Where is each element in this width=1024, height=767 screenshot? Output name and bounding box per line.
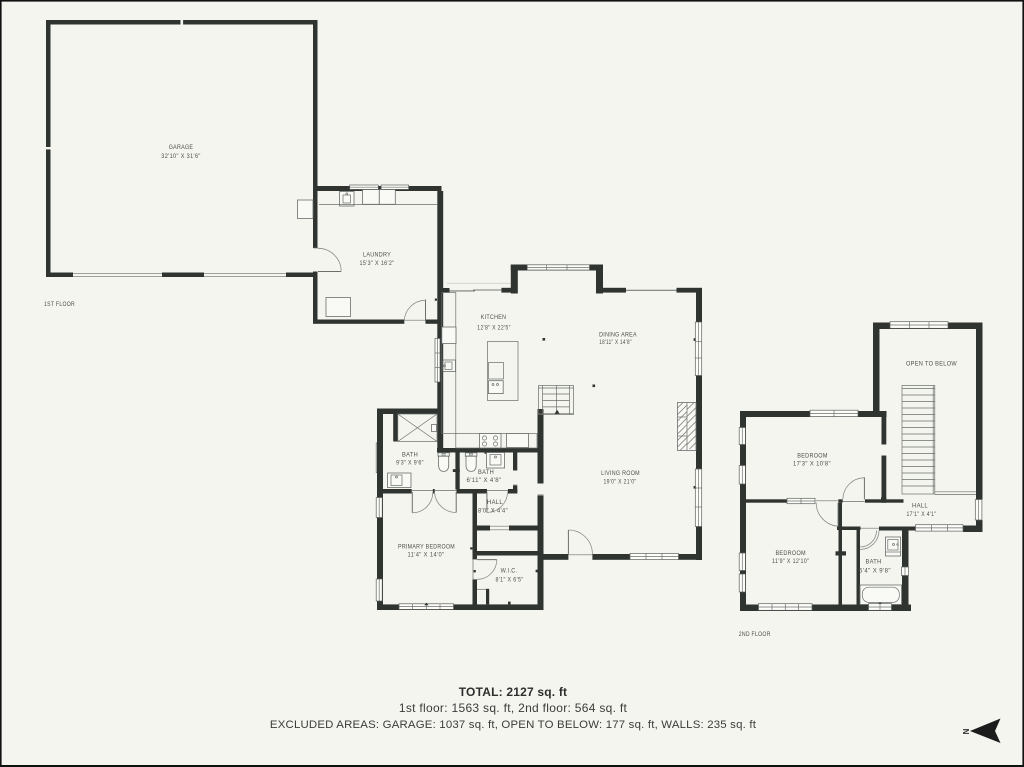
svg-text:1st floor: 1563 sq. ft, 2nd fl: 1st floor: 1563 sq. ft, 2nd floor: 564 s… — [399, 701, 628, 715]
svg-text:17'1" X 4'1": 17'1" X 4'1" — [907, 511, 937, 518]
svg-text:N: N — [961, 729, 970, 735]
svg-text:BEDROOM: BEDROOM — [775, 550, 806, 557]
svg-text:KITCHEN: KITCHEN — [481, 314, 507, 321]
svg-text:32'10" X 31'6": 32'10" X 31'6" — [161, 153, 201, 160]
svg-text:HALL: HALL — [912, 503, 928, 510]
svg-text:18'11" X 14'8": 18'11" X 14'8" — [599, 339, 632, 346]
svg-text:HALL: HALL — [487, 499, 503, 506]
svg-text:PRIMARY BEDROOM: PRIMARY BEDROOM — [398, 544, 455, 551]
svg-text:BATH: BATH — [478, 469, 494, 476]
svg-text:GARAGE: GARAGE — [169, 144, 194, 151]
svg-text:15'3" X 16'2": 15'3" X 16'2" — [360, 260, 395, 267]
svg-text:EXCLUDED AREAS: GARAGE: 1037 s: EXCLUDED AREAS: GARAGE: 1037 sq. ft, OPE… — [270, 719, 757, 731]
svg-text:LAUNDRY: LAUNDRY — [363, 252, 391, 259]
svg-text:OPEN TO BELOW: OPEN TO BELOW — [906, 361, 957, 368]
svg-text:8'0" X 4'4": 8'0" X 4'4" — [478, 508, 508, 515]
svg-text:2ND FLOOR: 2ND FLOOR — [739, 631, 771, 638]
svg-text:BATH: BATH — [866, 559, 882, 566]
svg-text:1ST FLOOR: 1ST FLOOR — [44, 301, 75, 308]
svg-text:8'1" X 6'5": 8'1" X 6'5" — [496, 577, 524, 584]
svg-text:LIVING ROOM: LIVING ROOM — [601, 470, 640, 477]
svg-text:17'3" X 10'8": 17'3" X 10'8" — [793, 461, 831, 468]
svg-text:BEDROOM: BEDROOM — [797, 453, 828, 460]
svg-text:19'0" X 21'0": 19'0" X 21'0" — [604, 479, 637, 486]
svg-text:6'11" X 4'8": 6'11" X 4'8" — [467, 477, 502, 484]
svg-text:TOTAL: 2127 sq. ft: TOTAL: 2127 sq. ft — [459, 685, 568, 699]
svg-text:11'4" X 14'0": 11'4" X 14'0" — [408, 552, 445, 559]
svg-text:11'9" X 12'10": 11'9" X 12'10" — [772, 558, 809, 565]
svg-text:BATH: BATH — [402, 452, 418, 459]
svg-text:DINING AREA: DINING AREA — [599, 332, 637, 339]
svg-text:9'3" X 9'6": 9'3" X 9'6" — [396, 460, 424, 467]
svg-text:5'4" X 9'8": 5'4" X 9'8" — [859, 568, 891, 575]
svg-text:12'8" X 22'5": 12'8" X 22'5" — [477, 325, 511, 332]
svg-text:W.I.C.: W.I.C. — [501, 568, 518, 575]
